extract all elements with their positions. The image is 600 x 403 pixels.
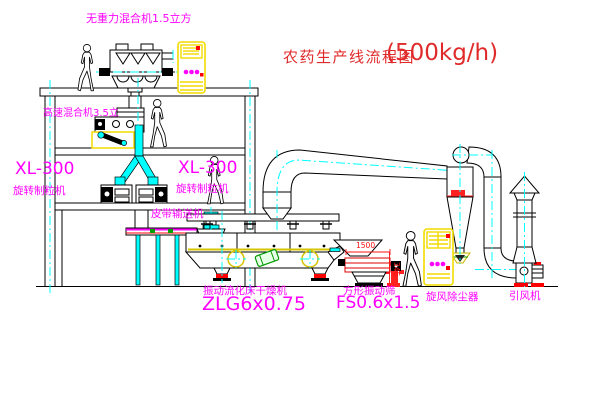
label-granulator-right-name: 旋转制粒机: [176, 184, 229, 195]
indicator-light: [446, 234, 450, 238]
label-granulator-left-model: XL-300: [15, 161, 74, 178]
label-granulator-left-name: 旋转制粒机: [13, 186, 66, 197]
label-belt-conveyor: 皮带输送机: [151, 209, 204, 220]
label-high-speed-mixer: 高速混合机3.5立: [43, 109, 119, 119]
high-speed-mixer: [92, 96, 144, 156]
control-cabinet-ground: [424, 229, 453, 285]
dimension-sieve-height: 346: [393, 262, 401, 276]
induced-draft-fan: [514, 262, 544, 287]
label-dryer-model: ZLG6x0.75: [202, 295, 306, 314]
control-cabinet-roof: [178, 42, 205, 93]
label-fan: 引风机: [509, 291, 541, 302]
knob: [435, 262, 440, 267]
label-granulator-right-model: XL-300: [178, 160, 237, 177]
indicator-light: [196, 46, 200, 50]
knob: [430, 262, 435, 267]
dimension-sieve-length: 1500: [356, 242, 375, 250]
worker-figure-4: [403, 231, 421, 286]
diagram-title-capacity: (500kg/h): [386, 42, 498, 65]
label-sieve-model: FS0.6x1.5: [336, 295, 420, 312]
knob: [184, 70, 189, 75]
cad-flow-diagram: 无重力混合机1.5立方 高速混合机3.5立 XL-300 旋转制粒机 XL-30…: [0, 0, 600, 403]
worker-figure-1: [78, 44, 94, 90]
granulator-left: [101, 177, 132, 203]
granulator-right: [136, 177, 167, 203]
worker-figure-2: [151, 99, 167, 146]
knob: [441, 262, 446, 267]
cyclone-red-band: [451, 190, 465, 196]
label-cyclone: 旋风除尘器: [426, 292, 479, 303]
knob: [195, 70, 200, 75]
knob: [189, 70, 194, 75]
label-zero-gravity-mixer: 无重力混合机1.5立方: [86, 13, 192, 24]
